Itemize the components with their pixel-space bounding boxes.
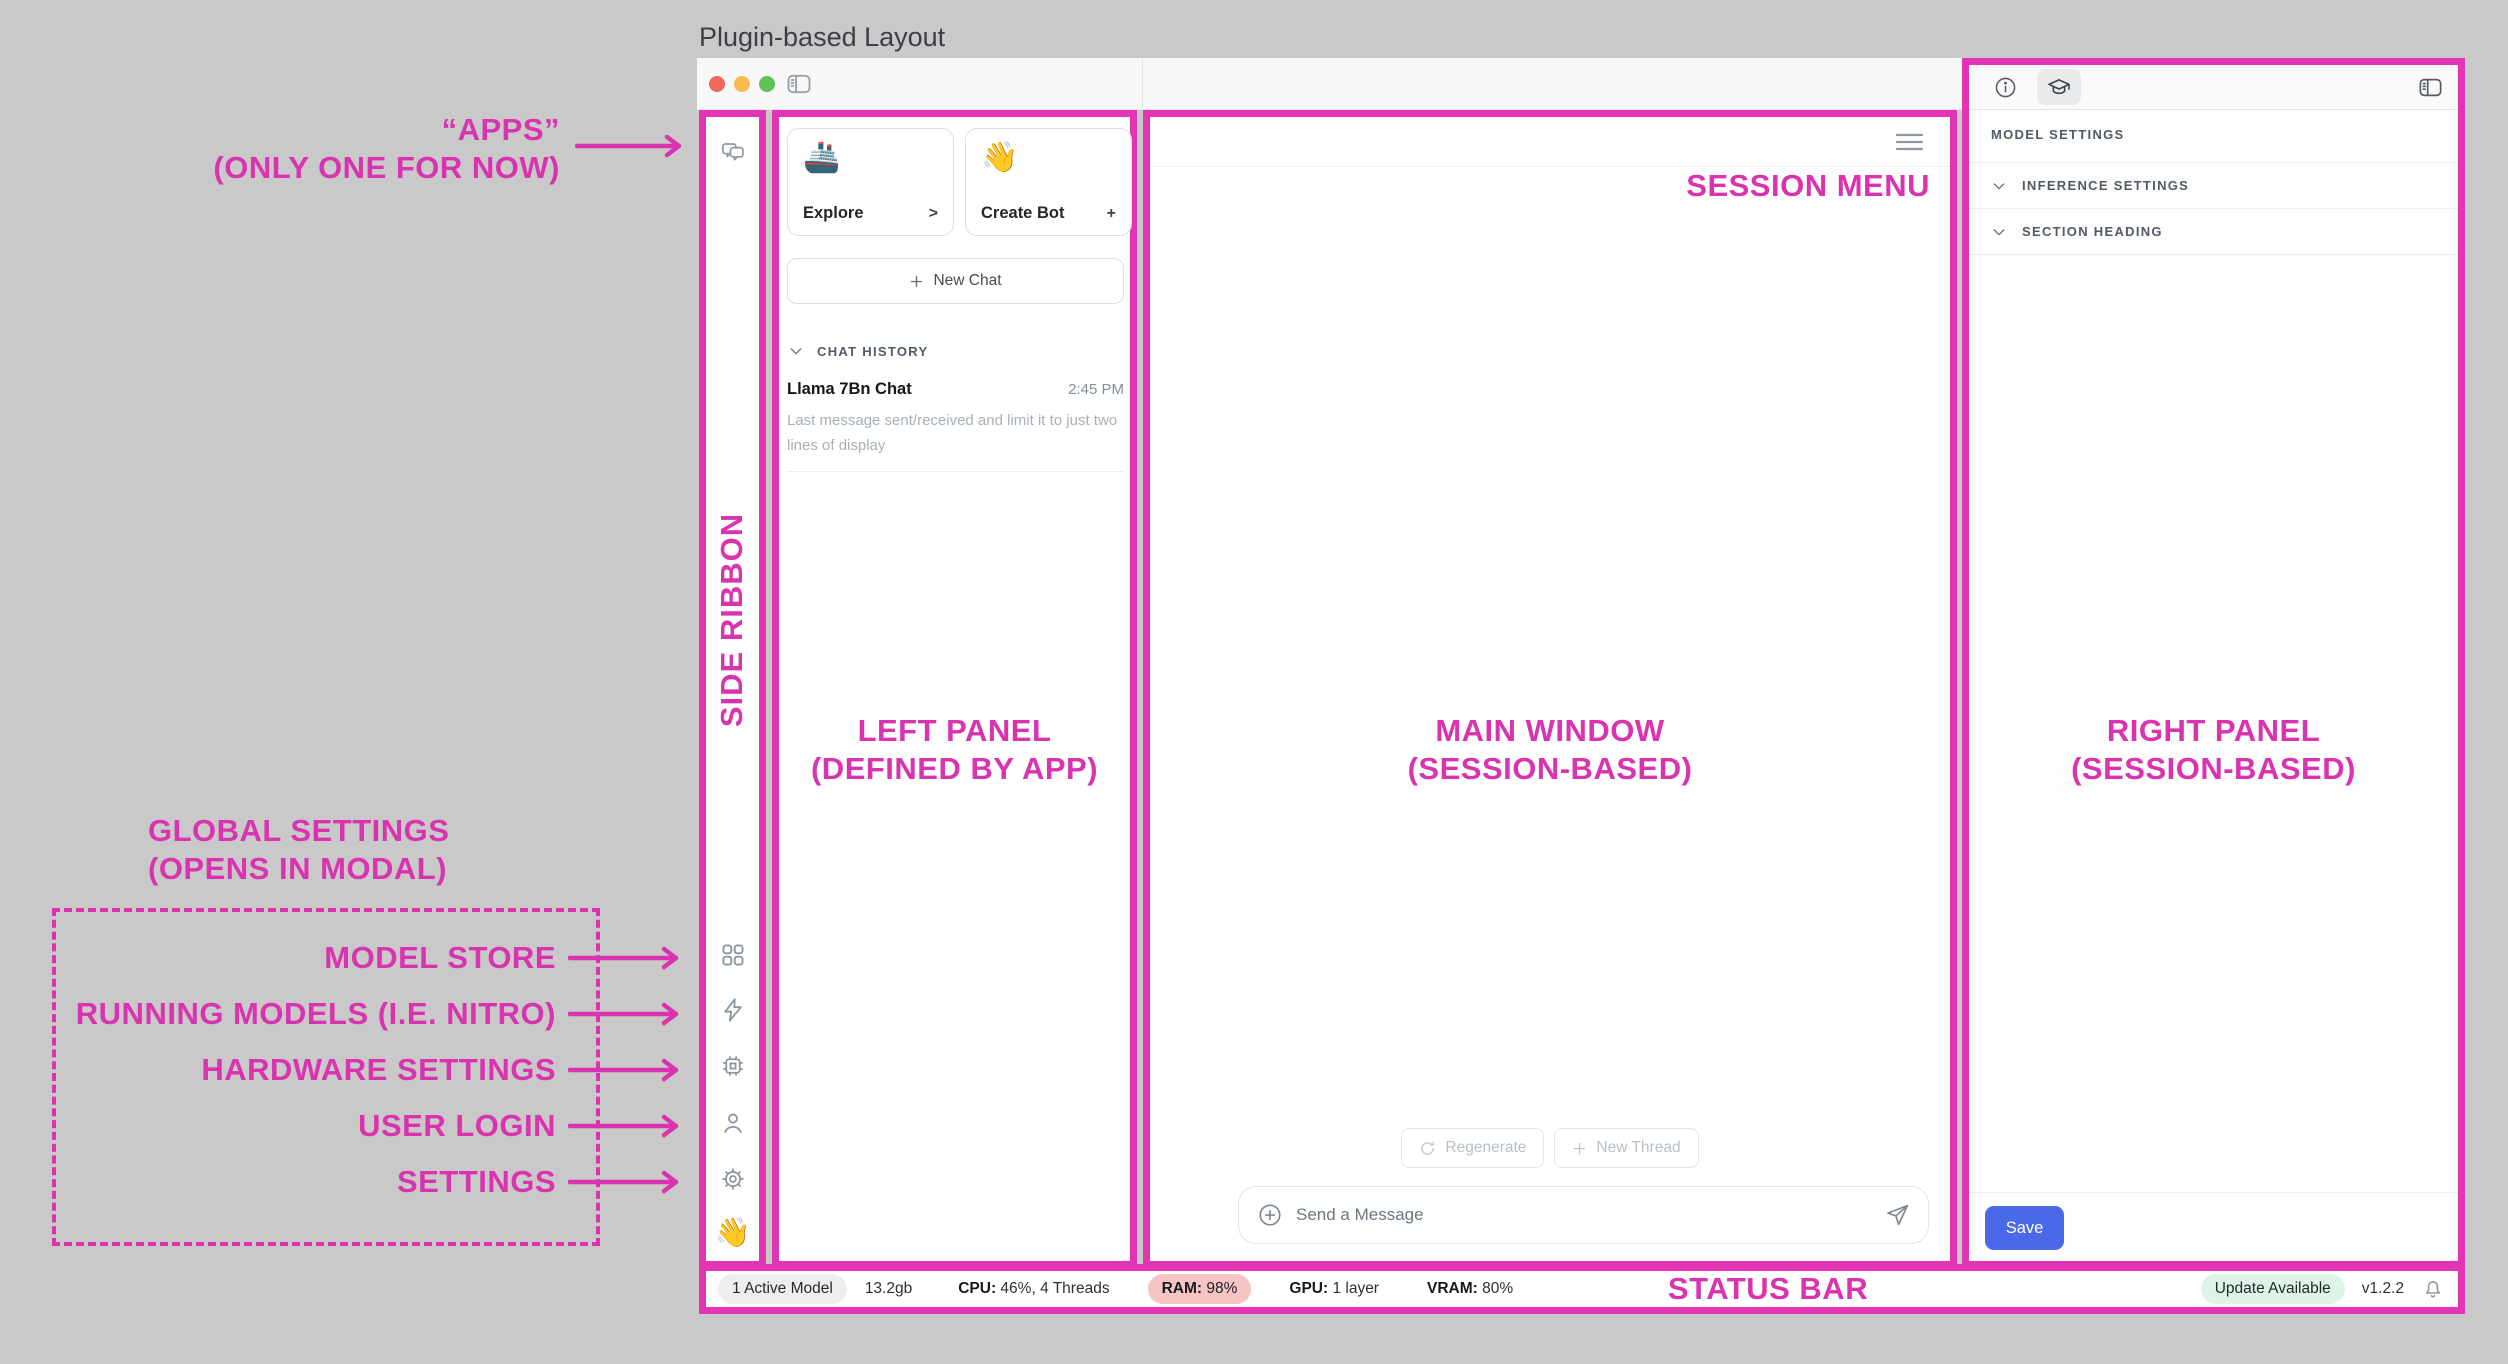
hardware-settings-annotation: HARDWARE SETTINGS (40, 1051, 556, 1089)
toggle-right-sidebar-icon[interactable] (2417, 74, 2444, 101)
plus-icon (909, 274, 924, 289)
settings-arrow (568, 1169, 688, 1195)
left-panel: 🚢 Explore > 👋 Create Bot + New Chat CHAT… (772, 110, 1137, 1268)
save-button[interactable]: Save (1985, 1206, 2064, 1250)
hardware-settings-icon[interactable] (719, 1053, 746, 1080)
chevron-down-icon (788, 343, 804, 359)
titlebar-divider (1142, 58, 1143, 110)
attach-plus-icon[interactable] (1257, 1202, 1283, 1228)
divider (1969, 1192, 2458, 1193)
minimize-window-button[interactable] (734, 76, 750, 92)
active-model-badge[interactable]: 1 Active Model (718, 1274, 847, 1304)
running-models-annotation: RUNNING MODELS (I.E. NITRO) (40, 995, 556, 1033)
graduation-cap-icon (2046, 74, 2072, 100)
chats-app-icon[interactable] (719, 140, 746, 167)
settings-gear-icon[interactable] (719, 1166, 746, 1193)
wave-hand-emoji: 👋 (981, 141, 1116, 175)
right-panel-annotation: RIGHT PANEL (SESSION-BASED) (1969, 712, 2458, 788)
ship-emoji: 🚢 (803, 141, 938, 175)
info-tab[interactable] (1983, 69, 2027, 105)
create-bot-card[interactable]: 👋 Create Bot + (965, 128, 1132, 236)
new-thread-button[interactable]: New Thread (1554, 1128, 1698, 1168)
window-titlebar (697, 58, 1962, 110)
new-thread-label: New Thread (1596, 1139, 1680, 1157)
chat-list-item[interactable]: Llama 7Bn Chat 2:45 PM Last message sent… (787, 380, 1124, 472)
model-size-value: 13.2gb (865, 1280, 912, 1298)
left-panel-annotation: LEFT PANEL (DEFINED BY APP) (779, 712, 1130, 788)
right-panel-header (1969, 65, 2458, 110)
explore-card[interactable]: 🚢 Explore > (787, 128, 954, 236)
status-bar-annotation: STATUS BAR (1668, 1270, 1868, 1308)
wave-hand-emoji: 👋 (714, 1216, 750, 1250)
model-settings-heading: MODEL SETTINGS (1991, 127, 2125, 142)
chevron-down-icon (1991, 224, 2007, 240)
apps-arrow (575, 133, 691, 159)
model-store-arrow (568, 945, 688, 971)
plus-icon (1572, 1141, 1587, 1156)
chat-title: Llama 7Bn Chat (787, 380, 912, 399)
maximize-window-button[interactable] (759, 76, 775, 92)
hardware-settings-arrow (568, 1057, 688, 1083)
new-chat-label: New Chat (933, 272, 1001, 290)
close-window-button[interactable] (709, 76, 725, 92)
version-label: v1.2.2 (2362, 1280, 2404, 1298)
divider (787, 471, 1124, 472)
inference-settings-section[interactable]: INFERENCE SETTINGS (1969, 163, 2458, 209)
section-heading-label: SECTION HEADING (2022, 224, 2163, 239)
explore-card-label: Explore (803, 204, 864, 223)
chevron-down-icon (1991, 178, 2007, 194)
refresh-icon (1419, 1140, 1436, 1157)
create-bot-plus[interactable]: + (1107, 205, 1116, 223)
send-icon[interactable] (1885, 1203, 1910, 1228)
gpu-stat: GPU: 1 layer (1289, 1280, 1379, 1298)
ram-stat-badge: RAM: 98% (1148, 1274, 1252, 1304)
chat-preview: Last message sent/received and limit it … (787, 408, 1124, 458)
new-chat-button[interactable]: New Chat (787, 258, 1124, 304)
right-panel: MODEL SETTINGS INFERENCE SETTINGS SECTIO… (1962, 58, 2465, 1268)
model-store-icon[interactable] (719, 942, 746, 969)
running-models-icon[interactable] (719, 997, 746, 1024)
session-menu-icon[interactable] (1895, 132, 1924, 152)
message-bar (1238, 1186, 1929, 1244)
vram-stat: VRAM: 80% (1427, 1280, 1513, 1298)
create-bot-card-label: Create Bot (981, 204, 1064, 223)
info-icon (1993, 75, 2018, 100)
section-heading-section[interactable]: SECTION HEADING (1969, 209, 2458, 255)
regenerate-button[interactable]: Regenerate (1401, 1128, 1544, 1168)
model-store-annotation: MODEL STORE (40, 939, 556, 977)
chat-history-label: CHAT HISTORY (817, 344, 928, 359)
user-login-arrow (568, 1113, 688, 1139)
running-models-arrow (568, 1001, 688, 1027)
user-login-icon[interactable] (719, 1110, 746, 1137)
main-window: SESSION MENU MAIN WINDOW (SESSION-BASED)… (1143, 110, 1957, 1268)
main-window-annotation: MAIN WINDOW (SESSION-BASED) (1150, 712, 1950, 788)
status-bar: 1 Active Model 13.2gb CPU: 46%, 4 Thread… (699, 1264, 2465, 1314)
notifications-bell-icon[interactable] (2421, 1277, 2445, 1301)
user-login-annotation: USER LOGIN (40, 1107, 556, 1145)
apps-annotation: “APPS” (ONLY ONE FOR NOW) (0, 111, 560, 187)
global-settings-annotation: GLOBAL SETTINGS (OPENS IN MODAL) (148, 812, 449, 888)
message-input[interactable] (1296, 1205, 1872, 1225)
cpu-stat: CPU: 46%, 4 Threads (958, 1280, 1109, 1298)
main-topbar (1150, 117, 1950, 167)
toggle-left-sidebar-icon[interactable] (785, 70, 813, 98)
inference-settings-label: INFERENCE SETTINGS (2022, 178, 2189, 193)
page-title: Plugin-based Layout (699, 22, 945, 53)
model-settings-tab[interactable] (2037, 69, 2081, 105)
explore-chevron[interactable]: > (929, 205, 938, 223)
session-menu-annotation: SESSION MENU (1686, 167, 1930, 205)
update-available-badge[interactable]: Update Available (2201, 1274, 2345, 1304)
settings-annotation: SETTINGS (40, 1163, 556, 1201)
chat-history-header[interactable]: CHAT HISTORY (788, 343, 928, 359)
side-ribbon-annotation: SIDE RIBBON (714, 513, 750, 727)
chat-timestamp: 2:45 PM (1068, 381, 1124, 398)
regenerate-label: Regenerate (1445, 1139, 1526, 1157)
